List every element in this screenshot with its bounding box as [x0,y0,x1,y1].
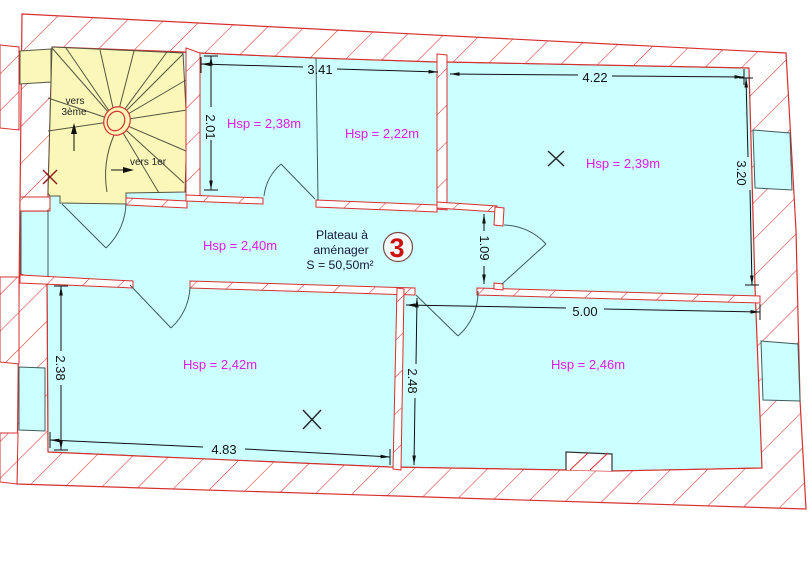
svg-text:vers: vers [66,96,85,107]
svg-text:Hsp = 2,42m: Hsp = 2,42m [183,357,257,372]
svg-text:Hsp = 2,38m: Hsp = 2,38m [227,116,301,131]
svg-text:Hsp = 2,39m: Hsp = 2,39m [586,156,660,171]
svg-text:vers 1er: vers 1er [130,157,167,168]
svg-text:3.20: 3.20 [734,160,749,185]
svg-text:S = 50,50m²: S = 50,50m² [306,258,373,272]
svg-text:1.09: 1.09 [477,235,492,260]
svg-text:Hsp = 2,46m: Hsp = 2,46m [551,357,625,372]
svg-text:4.22: 4.22 [582,70,607,85]
svg-text:3: 3 [389,233,404,263]
svg-text:aménager: aménager [313,243,368,257]
svg-text:4.83: 4.83 [211,442,236,457]
svg-text:2.01: 2.01 [203,114,218,139]
svg-text:3ème: 3ème [61,107,86,118]
svg-text:Hsp = 2,40m: Hsp = 2,40m [203,238,277,253]
svg-text:3.41: 3.41 [307,62,332,77]
svg-text:2.38: 2.38 [53,355,68,380]
svg-text:5.00: 5.00 [572,304,597,319]
svg-text:2.48: 2.48 [405,368,420,393]
svg-text:Hsp = 2,22m: Hsp = 2,22m [345,126,419,141]
svg-text:Plateau à: Plateau à [316,228,368,242]
